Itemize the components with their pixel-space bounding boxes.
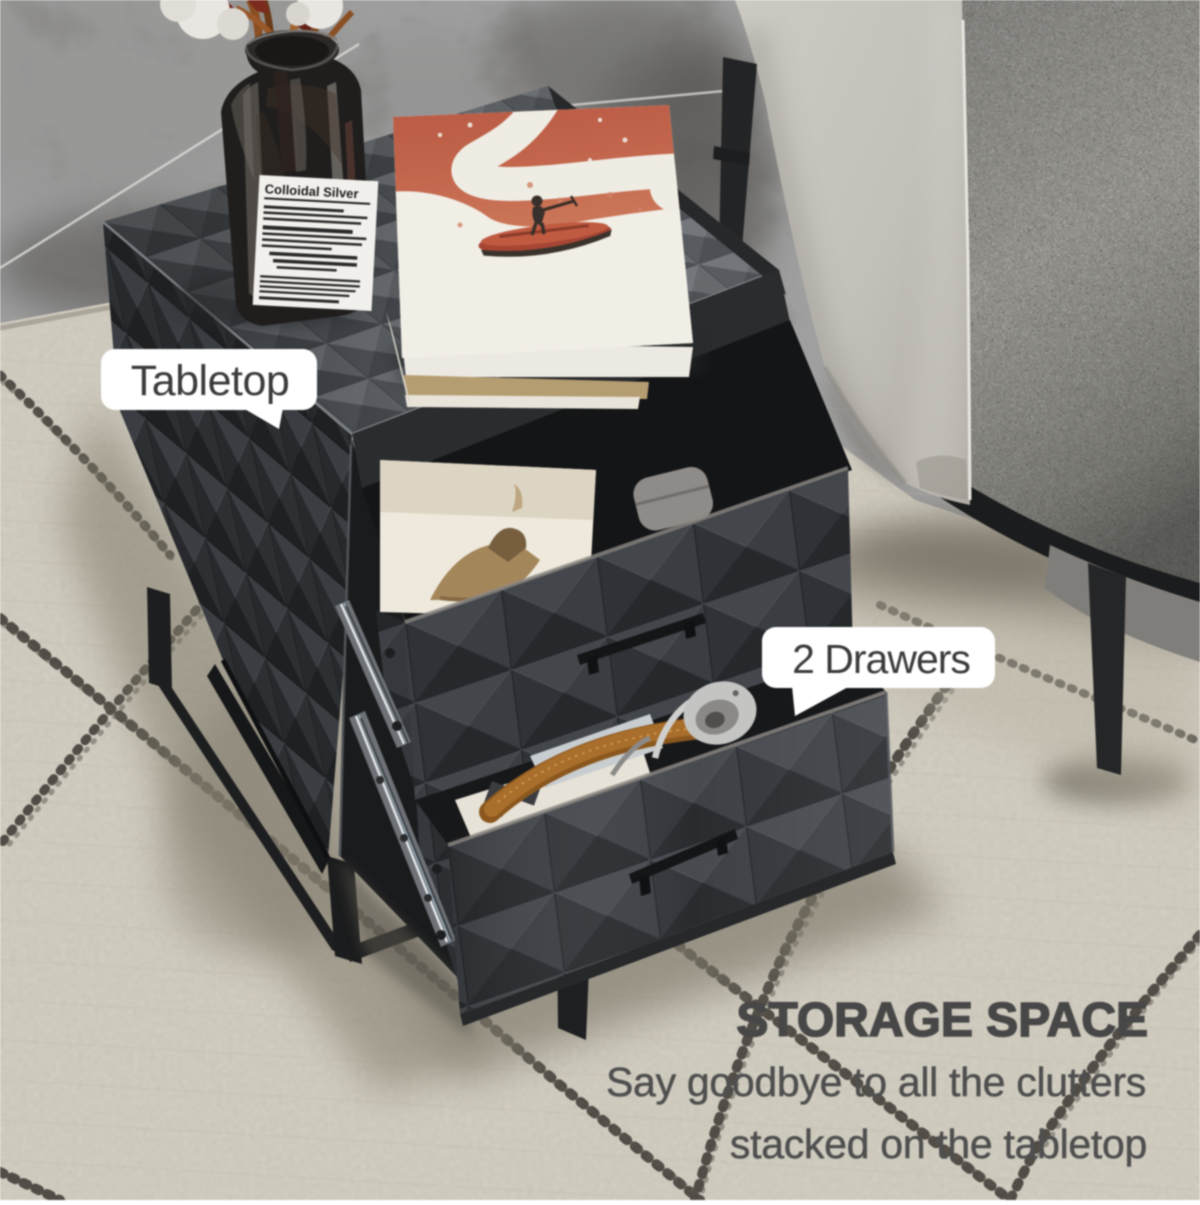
svg-text:STORAGE SPACE: STORAGE SPACE [736,994,1148,1047]
svg-text:2 Drawers: 2 Drawers [792,636,970,682]
svg-text:Tabletop: Tabletop [131,357,290,405]
svg-text:Say goodbye to all the clutter: Say goodbye to all the clutters [606,1059,1146,1105]
svg-text:stacked on the tabletop: stacked on the tabletop [730,1121,1147,1167]
